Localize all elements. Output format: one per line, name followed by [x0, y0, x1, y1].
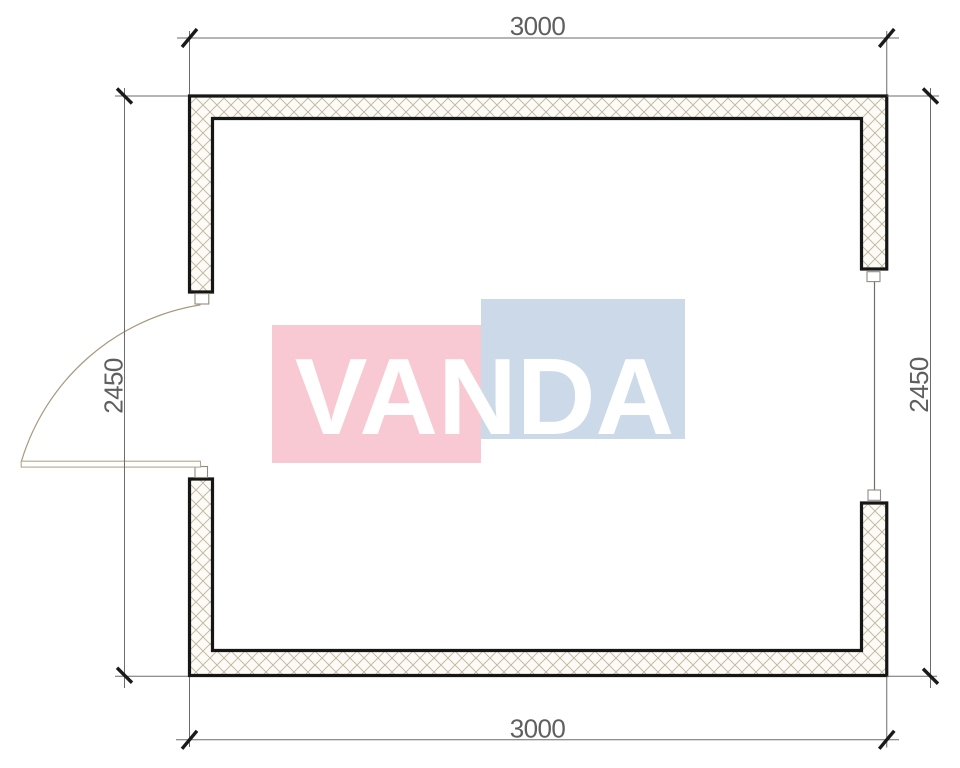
svg-text:VANDA: VANDA: [295, 336, 674, 458]
svg-text:3000: 3000: [510, 11, 566, 41]
svg-text:3000: 3000: [510, 714, 566, 744]
svg-text:2450: 2450: [904, 357, 934, 413]
svg-text:2450: 2450: [99, 358, 129, 414]
